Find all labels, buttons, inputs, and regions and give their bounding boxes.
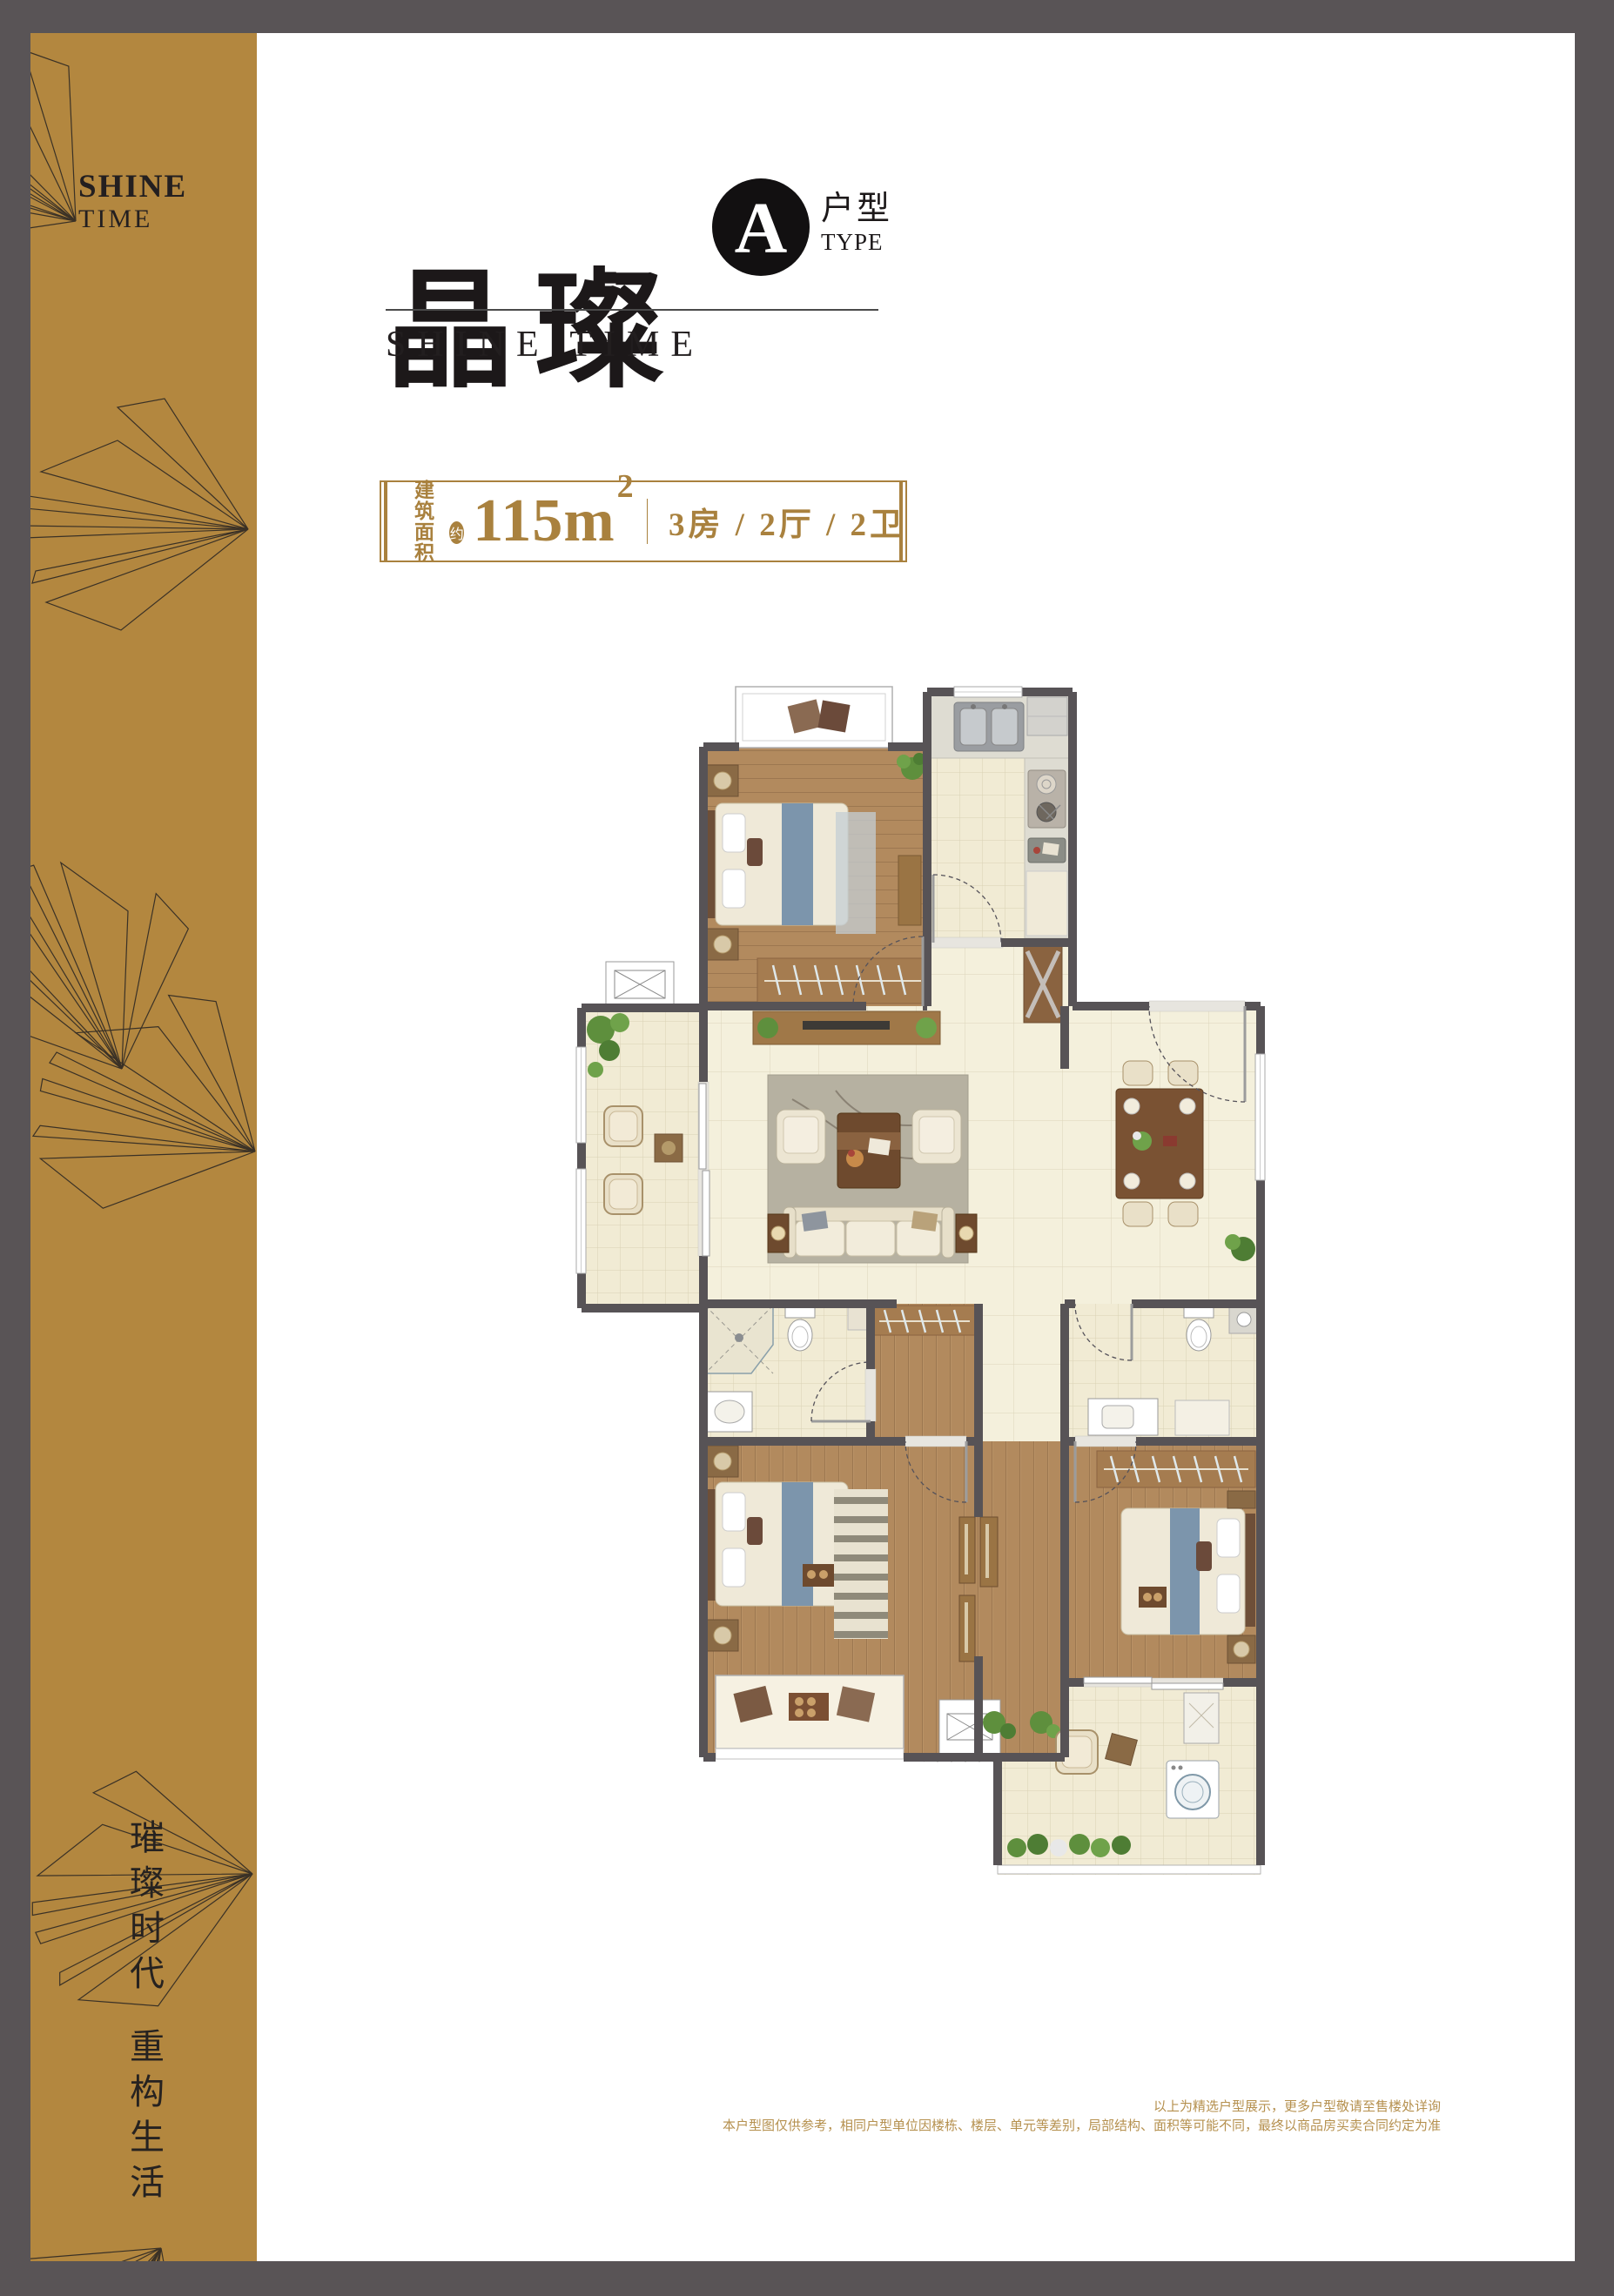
- bath-cabinet: [1175, 1400, 1229, 1435]
- spec-label: 建筑 面积: [414, 480, 442, 564]
- floor-plan-drawing: [575, 681, 1267, 1878]
- disclaimer: 以上为精选户型展示，更多户型敬请至售楼处详询 本户型图仅供参考，相同户型单位因楼…: [723, 2098, 1441, 2136]
- dining-chair: [1123, 1061, 1153, 1085]
- logo-line2: TIME: [78, 206, 187, 232]
- plant-icon: [916, 1017, 937, 1038]
- dining-chair: [1168, 1061, 1198, 1085]
- walk-in-closet: [874, 1306, 975, 1335]
- type-label-cn: 户型: [821, 191, 892, 228]
- foyer: [1024, 946, 1062, 1023]
- gold-stripe: SHINE TIME 璀璨时代 重构生活: [30, 33, 257, 2261]
- nightstand: [1227, 1491, 1255, 1508]
- type-labels: 户型 TYPE: [821, 191, 892, 256]
- logo-line1: SHINE: [78, 171, 187, 203]
- poster-page: SHINE TIME 璀璨时代 重构生活 晶璨 A 户型 TYPE SHINE …: [0, 0, 1614, 2296]
- spec-label-line2: 面积: [414, 521, 442, 563]
- bay-window-top: [736, 687, 892, 748]
- logo: SHINE TIME: [78, 171, 187, 232]
- rug: [836, 812, 876, 934]
- bay-window-bottom: [716, 1675, 904, 1759]
- vertical-slogan-2: 重构生活: [118, 2028, 169, 2209]
- rooms-spec: 3房 / 2厅 / 2卫: [669, 498, 905, 545]
- area-number: 115m: [473, 487, 615, 554]
- page-subtitle: SHINE TIME: [386, 324, 704, 366]
- balcony-glass: [998, 1865, 1261, 1874]
- vertical-slogan-1: 璀璨时代: [118, 1819, 169, 2000]
- approx-badge: 约: [449, 521, 464, 544]
- plant-icon: [587, 1016, 615, 1044]
- striped-rug: [834, 1489, 888, 1639]
- area-value: 115m2: [473, 491, 632, 552]
- plant-icon: [757, 1017, 778, 1038]
- disclaimer-line2: 本户型图仅供参考，相同户型单位因楼栋、楼层、单元等差别，局部结构、面积等可能不同…: [723, 2117, 1441, 2136]
- tv: [803, 1021, 890, 1030]
- ac-platform-left: [606, 962, 674, 1008]
- dining-chair: [1168, 1202, 1198, 1226]
- type-label-en: TYPE: [821, 228, 892, 256]
- laundry-sink: [1184, 1693, 1219, 1743]
- type-a-badge: A: [712, 178, 810, 276]
- area-sup: 2: [617, 468, 635, 505]
- disclaimer-line1: 以上为精选户型展示，更多户型敬请至售楼处详询: [723, 2098, 1441, 2117]
- type-a-letter: A: [735, 192, 788, 265]
- dining-chair: [1123, 1202, 1153, 1226]
- spec-label-line1: 建筑: [414, 480, 442, 521]
- spec-divider: [647, 499, 648, 544]
- floor-plan: [575, 681, 1267, 1878]
- area-spec-box: 建筑 面积 约 115m2 3房 / 2厅 / 2卫: [380, 480, 907, 562]
- dresser: [898, 856, 921, 925]
- bed-headboard: [1245, 1514, 1255, 1627]
- title-divider: [386, 309, 878, 311]
- poster-canvas: SHINE TIME 璀璨时代 重构生活 晶璨 A 户型 TYPE SHINE …: [30, 33, 1575, 2261]
